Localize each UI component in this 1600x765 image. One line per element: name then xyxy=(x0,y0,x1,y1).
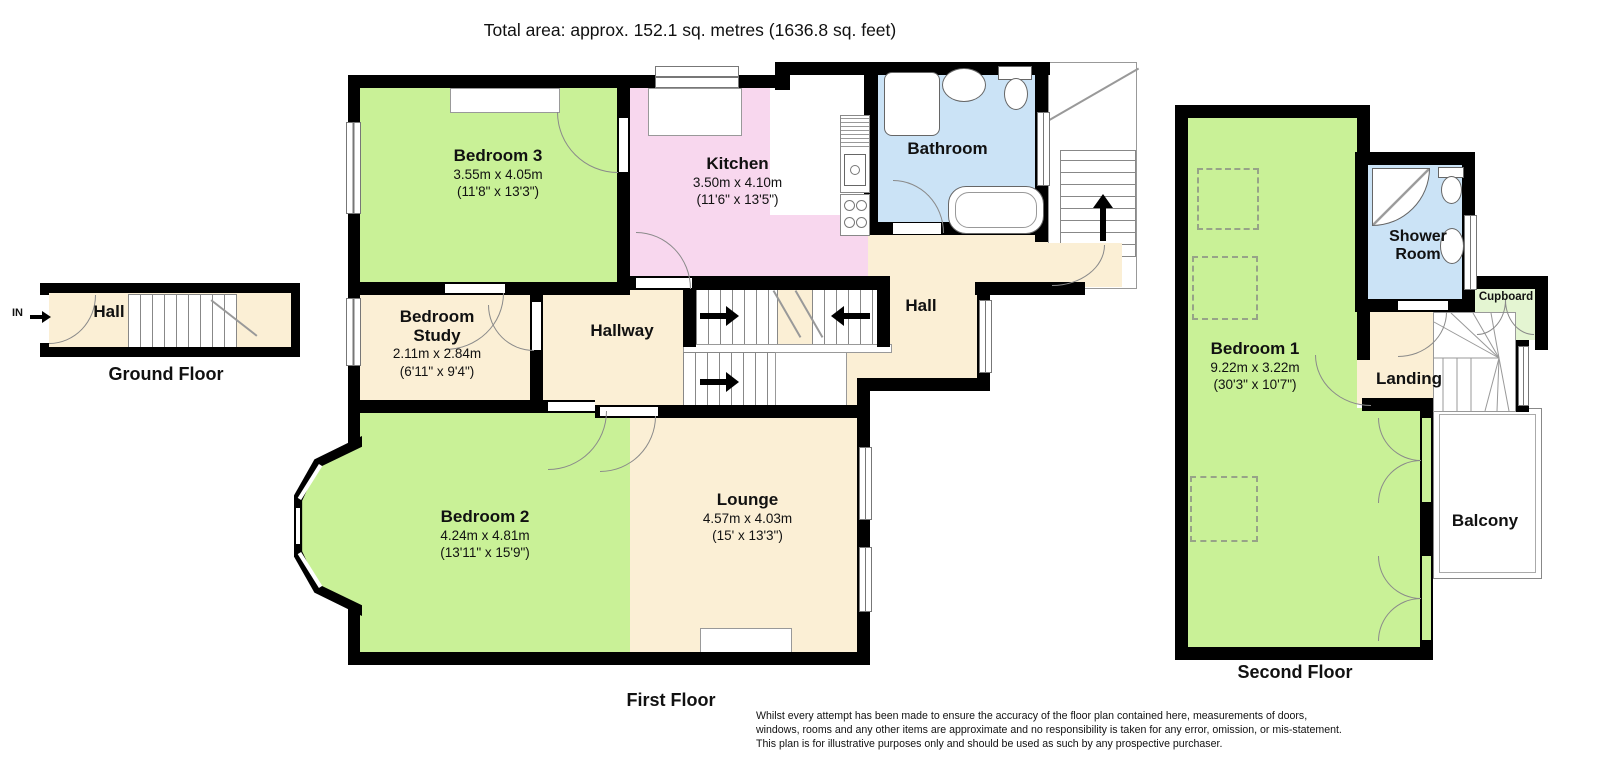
room-label-bedroom3: Bedroom 3 3.55m x 4.05m (11'8" x 13'3") xyxy=(398,147,598,200)
balcony-deck xyxy=(1433,408,1542,579)
door-opening xyxy=(1422,418,1431,502)
wall xyxy=(1175,647,1433,660)
room-label-cupboard: Cupboard xyxy=(1478,291,1534,304)
wall xyxy=(775,62,790,90)
room-name: Balcony xyxy=(1440,512,1530,531)
winder-stairs xyxy=(1433,312,1516,412)
room-dims-imperial: (13'11" x 15'9") xyxy=(385,544,585,561)
stairs-up-arrow xyxy=(700,313,726,319)
disclaimer-text: Whilst every attempt has been made to en… xyxy=(756,709,1342,752)
disclaimer-line: windows, rooms and any other items are a… xyxy=(756,723,1342,737)
wall xyxy=(1357,152,1475,165)
room-dims-imperial: (30'3" x 10'7") xyxy=(1195,376,1315,393)
room-dims-metric: 4.57m x 4.03m xyxy=(650,510,845,527)
room-dims-imperial: (6'11" x 9'4") xyxy=(385,363,489,380)
stairs-up-arrow xyxy=(700,379,726,385)
window xyxy=(979,300,992,373)
disclaimer-line: This plan is for illustrative purposes o… xyxy=(756,737,1342,751)
room-label-bathroom: Bathroom xyxy=(880,140,1015,159)
drainer-icon xyxy=(841,116,869,150)
room-name: Bedroom Study xyxy=(385,308,489,345)
room-label-bedroom1: Bedroom 1 9.22m x 3.22m (30'3" x 10'7") xyxy=(1195,340,1315,393)
burner-icon xyxy=(844,217,855,228)
room-label-shower-room: Shower Room xyxy=(1375,228,1461,264)
window xyxy=(346,298,361,366)
room-name: Bedroom 1 xyxy=(1195,340,1315,359)
room-name: Landing xyxy=(1365,370,1453,389)
total-area-title: Total area: approx. 152.1 sq. metres (16… xyxy=(0,20,1380,41)
window xyxy=(1464,215,1477,290)
window xyxy=(655,66,739,88)
window xyxy=(1037,112,1050,186)
stairs-up-arrow xyxy=(1100,207,1106,241)
wall xyxy=(1535,276,1548,350)
wall xyxy=(40,347,300,357)
shower-icon xyxy=(884,72,940,136)
second-floor-label: Second Floor xyxy=(1195,662,1395,683)
room-dims-imperial: (11'6" x 13'5") xyxy=(645,191,830,208)
wall xyxy=(291,283,300,357)
wall xyxy=(1175,105,1370,118)
bay-window-glass xyxy=(296,508,300,544)
window xyxy=(1518,346,1529,406)
toilet-icon xyxy=(1441,176,1462,204)
door-opening xyxy=(1422,556,1431,640)
wall xyxy=(877,287,890,347)
door-opening xyxy=(600,407,658,416)
burner-icon xyxy=(856,200,867,211)
room-name: Cupboard xyxy=(1478,291,1534,304)
room-dims-metric: 3.50m x 4.10m xyxy=(645,174,830,191)
stair-landing xyxy=(775,352,847,407)
room-label-balcony: Balcony xyxy=(1440,512,1530,531)
wall xyxy=(1175,105,1188,660)
drain-icon xyxy=(850,165,860,175)
burner-icon xyxy=(856,217,867,228)
toilet-icon xyxy=(1004,78,1028,110)
room-label-kitchen: Kitchen 3.50m x 4.10m (11'6" x 13'5") xyxy=(645,155,830,208)
room-label-hallway: Hallway xyxy=(560,322,684,341)
room-label-lounge: Lounge 4.57m x 4.03m (15' x 13'3") xyxy=(650,491,845,544)
room-dims-metric: 2.11m x 2.84m xyxy=(385,345,489,362)
room-dims-metric: 4.24m x 4.81m xyxy=(385,527,585,544)
room-label-landing: Landing xyxy=(1365,370,1453,389)
room-name: Hall xyxy=(886,297,956,316)
bay-window xyxy=(294,436,362,616)
room-dims-imperial: (11'8" x 13'3") xyxy=(398,183,598,200)
room-name: Lounge xyxy=(650,491,845,510)
wall xyxy=(857,385,870,665)
room-name: Hallway xyxy=(560,322,684,341)
entrance-arrow-icon xyxy=(30,315,42,319)
door-opening xyxy=(548,402,595,411)
wall xyxy=(683,287,696,347)
sink-icon xyxy=(942,68,986,102)
entrance-label: IN xyxy=(12,307,23,319)
room-label-study: Bedroom Study 2.11m x 2.84m (6'11" x 9'4… xyxy=(385,308,489,380)
kitchen-sink-unit xyxy=(840,115,870,193)
room-name: Bedroom 2 xyxy=(385,508,585,527)
bathtub-inner-icon xyxy=(955,192,1037,228)
ground-stairs xyxy=(128,294,237,348)
room-label-ground-hall: Hall xyxy=(86,303,132,322)
wall xyxy=(348,652,870,665)
window xyxy=(346,122,361,214)
wall xyxy=(40,283,300,293)
hob-unit xyxy=(840,194,870,236)
disclaimer-line: Whilst every attempt has been made to en… xyxy=(756,709,1342,723)
dashed-storage-outline xyxy=(1192,256,1258,320)
first-floor-label: First Floor xyxy=(571,690,771,711)
dashed-storage-outline xyxy=(1190,476,1258,542)
wall xyxy=(1357,312,1370,360)
room-name: Bedroom 3 xyxy=(398,147,598,166)
room-dims-metric: 3.55m x 4.05m xyxy=(398,166,598,183)
stairs-up-arrow xyxy=(844,313,870,319)
room-name: Shower Room xyxy=(1375,228,1461,264)
door-opening xyxy=(1398,301,1448,310)
room-name: Hall xyxy=(86,303,132,322)
room-label-bedroom2: Bedroom 2 4.24m x 4.81m (13'11" x 15'9") xyxy=(385,508,585,561)
door-opening xyxy=(445,284,505,293)
wall xyxy=(1355,152,1368,312)
room-name: Kitchen xyxy=(645,155,830,174)
room-dims-metric: 9.22m x 3.22m xyxy=(1195,359,1315,376)
window-recess xyxy=(450,88,560,113)
wall xyxy=(857,378,990,391)
hearth-recess xyxy=(700,628,792,654)
room-name: Bathroom xyxy=(880,140,1015,159)
dashed-storage-outline xyxy=(1197,168,1259,230)
window xyxy=(859,547,872,612)
window-recess xyxy=(648,88,742,136)
ground-floor-label: Ground Floor xyxy=(66,364,266,385)
room-dims-imperial: (15' x 13'3") xyxy=(650,527,845,544)
window xyxy=(859,447,872,520)
door-opening xyxy=(619,118,628,172)
room-label-hall: Hall xyxy=(886,297,956,316)
burner-icon xyxy=(844,200,855,211)
floorplan-canvas: Total area: approx. 152.1 sq. metres (16… xyxy=(0,0,1600,765)
